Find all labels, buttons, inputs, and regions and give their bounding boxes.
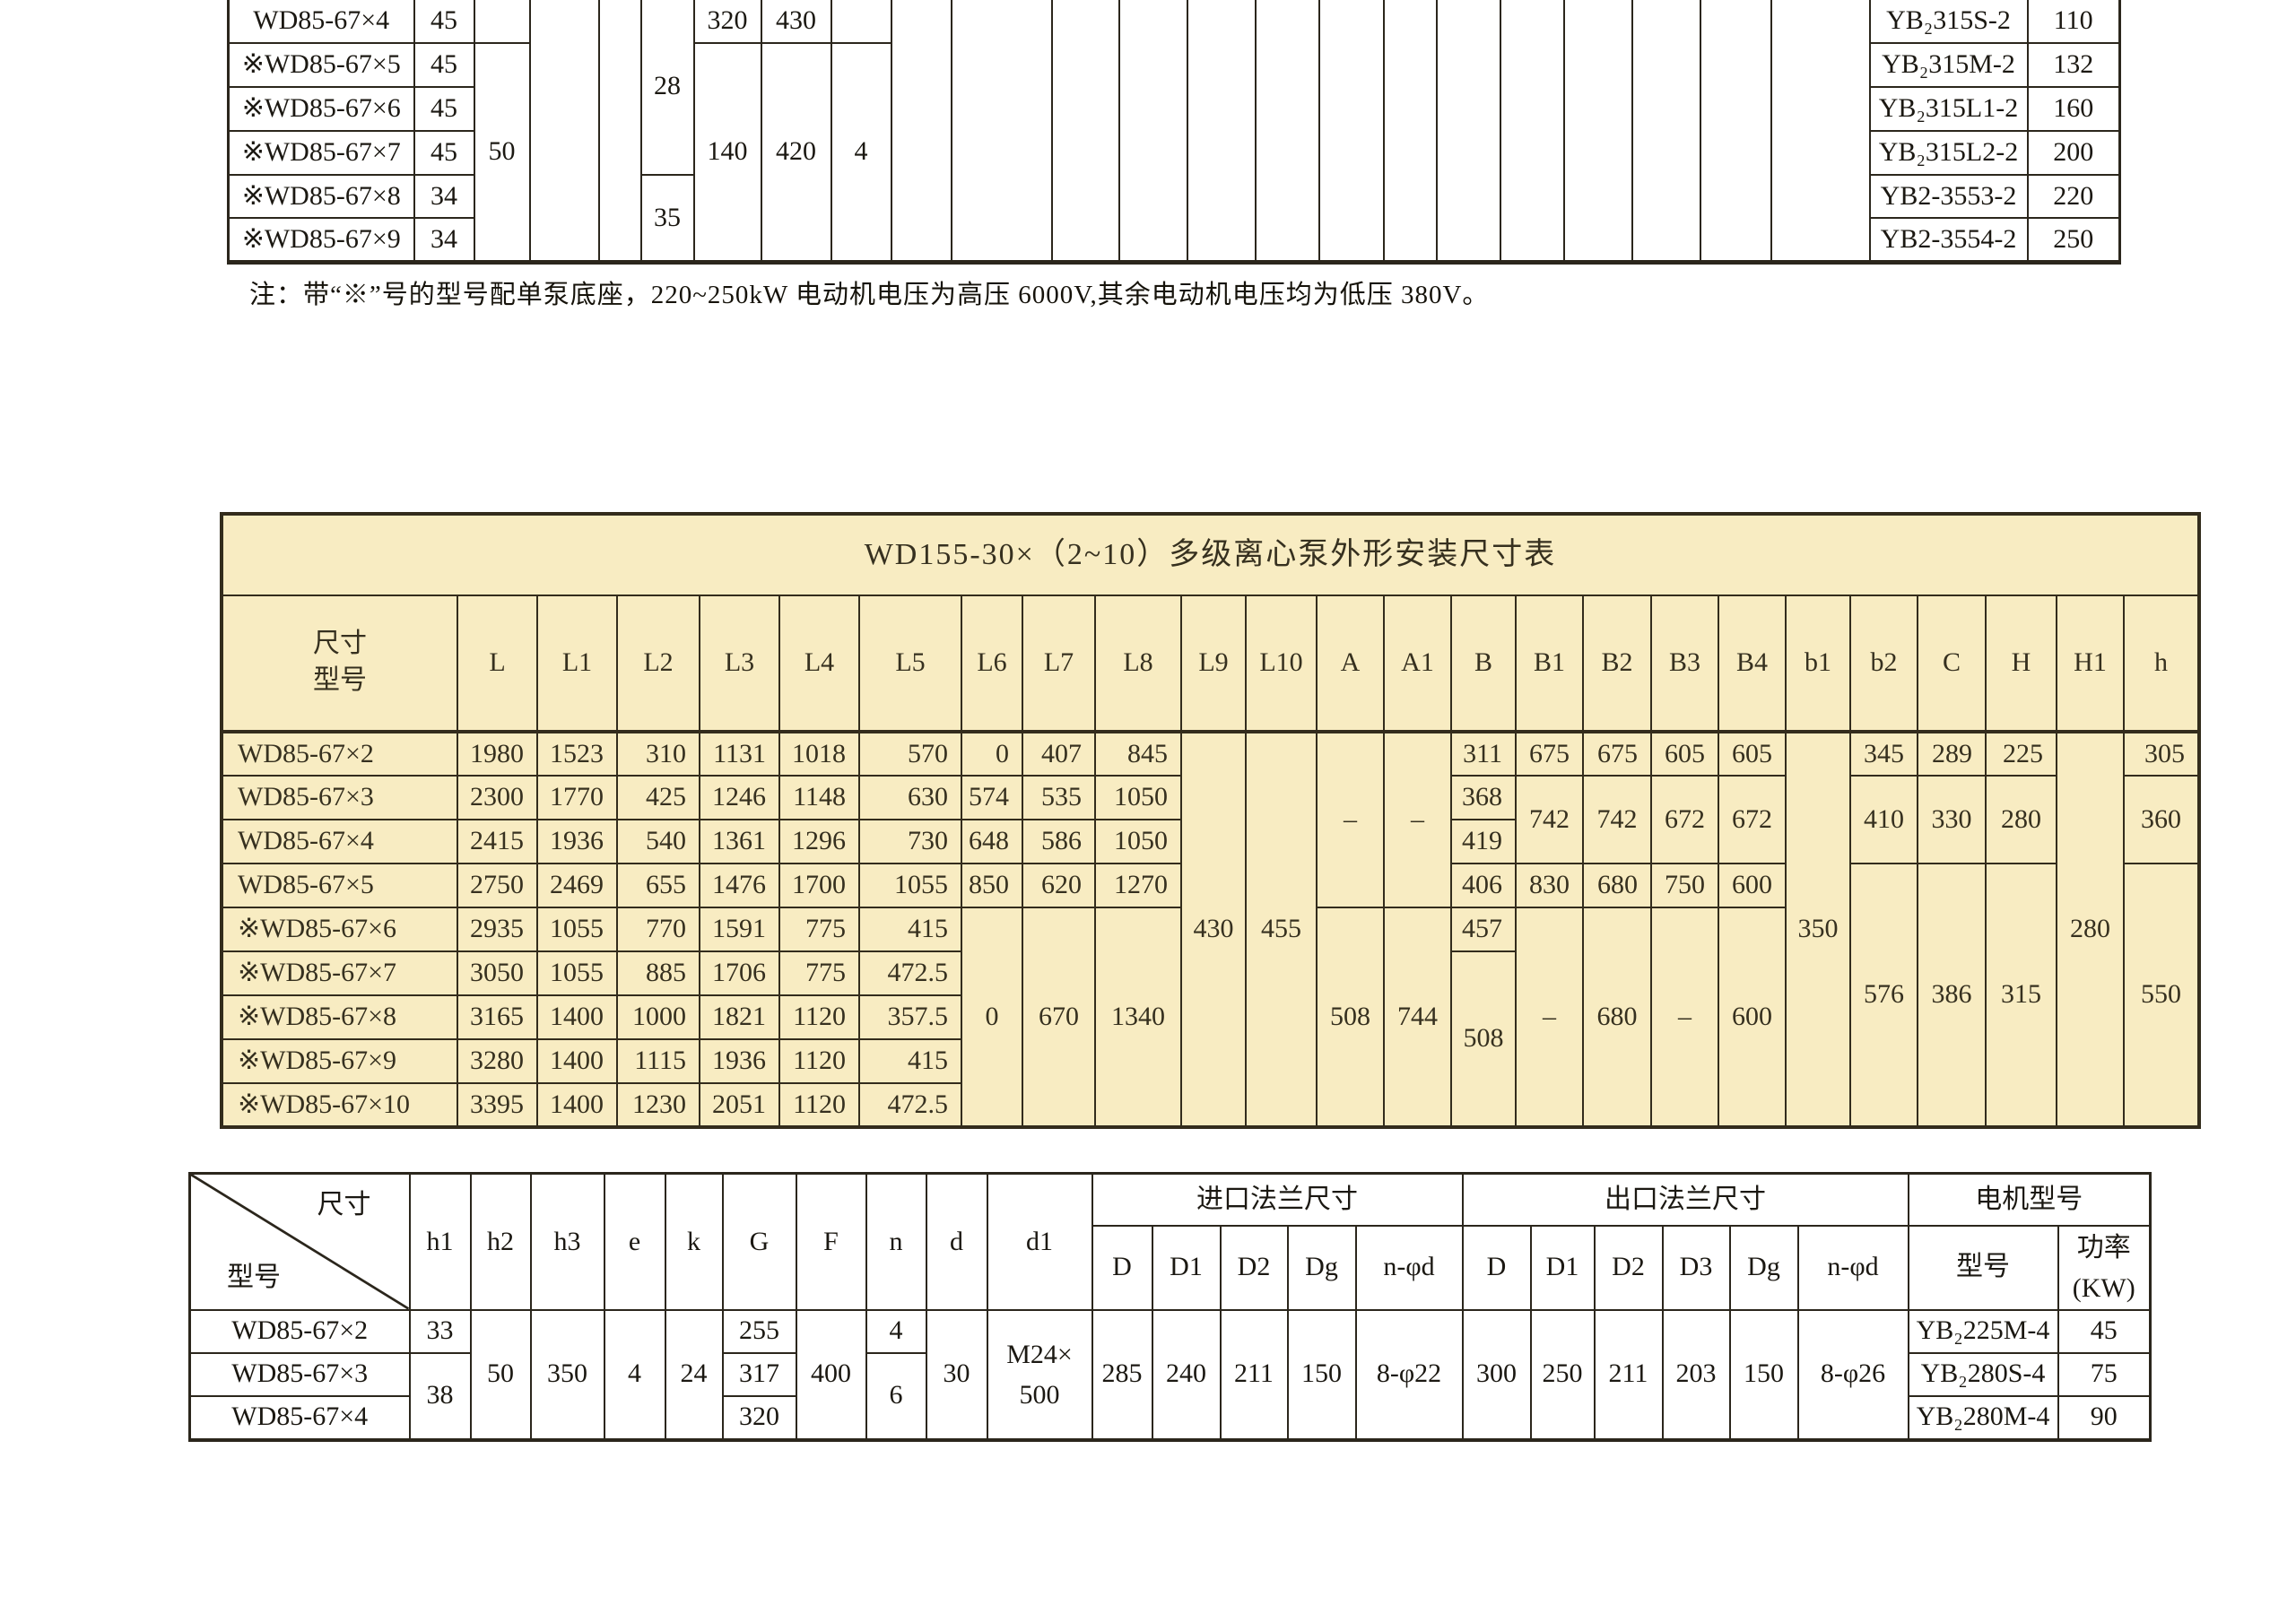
value-cell: 1115 <box>617 1039 700 1083</box>
value-cell: 655 <box>617 864 700 907</box>
top-table: WD85-67×4 45 28 320 430 YB₂315S-2 110 ※W… <box>227 0 2121 265</box>
value-cell: 350 <box>1786 732 1850 1127</box>
col-header-L6: L6 <box>961 595 1022 732</box>
col-header-h1: h1 <box>410 1174 471 1310</box>
model-cell: WD85-67×5 <box>222 864 457 907</box>
motor-cell: YB₂280M-4 <box>1909 1396 2058 1440</box>
value-cell: 35 <box>641 175 694 262</box>
model-cell: ※WD85-67×6 <box>222 907 457 951</box>
value-cell: 3395 <box>457 1083 537 1127</box>
col-header-L9: L9 <box>1181 595 1246 732</box>
value-cell: 30 <box>926 1310 987 1440</box>
value-cell: 300 <box>1463 1310 1531 1440</box>
motor-cell: YB2-3554-2 <box>1870 218 2028 262</box>
group-header-outlet-flange: 出口法兰尺寸 <box>1463 1174 1909 1226</box>
col-header-F: F <box>796 1174 866 1310</box>
empty-cell <box>952 0 1052 262</box>
value-cell: 4 <box>604 1310 665 1440</box>
value-cell: 0 <box>961 732 1022 776</box>
bottom-table: 尺寸 型号 h1 h2 h3 e k G F n d d1 进口法兰尺寸 出口法… <box>188 1172 2152 1442</box>
power-cell: 250 <box>2028 218 2120 262</box>
model-cell: ※WD85-67×8 <box>229 175 414 218</box>
value-cell: – <box>1651 907 1718 1127</box>
value-cell: 1591 <box>700 907 779 951</box>
value-cell: 1120 <box>779 1083 859 1127</box>
value-cell: 34 <box>414 218 474 262</box>
empty-cell <box>1564 0 1632 262</box>
empty-cell <box>1632 0 1700 262</box>
value-cell: 8-φ26 <box>1798 1310 1909 1440</box>
value-cell: 360 <box>2124 776 2199 864</box>
col-header-L3: L3 <box>700 595 779 732</box>
value-cell: 45 <box>414 0 474 43</box>
col-header-inlet-D2: D2 <box>1221 1226 1288 1310</box>
value-cell: – <box>1384 732 1451 907</box>
model-cell: WD85-67×3 <box>190 1353 410 1396</box>
value-cell: 535 <box>1022 776 1095 820</box>
value-cell: 1400 <box>537 1083 617 1127</box>
value-cell: 280 <box>2057 732 2124 1127</box>
col-header-inlet-Dg: Dg <box>1288 1226 1356 1310</box>
value-cell: 1000 <box>617 995 700 1039</box>
value-cell: 1361 <box>700 820 779 864</box>
value-cell: 1120 <box>779 995 859 1039</box>
value-cell: 670 <box>1022 907 1095 1127</box>
value-cell: 1270 <box>1095 864 1181 907</box>
value-cell: 311 <box>1451 732 1516 776</box>
model-cell: ※WD85-67×6 <box>229 87 414 131</box>
col-header-inlet-nphid: n-φd <box>1356 1226 1463 1310</box>
col-header-A1: A1 <box>1384 595 1451 732</box>
model-cell: WD85-67×3 <box>222 776 457 820</box>
empty-cell <box>530 0 599 262</box>
model-cell: WD85-67×2 <box>190 1310 410 1353</box>
value-cell: 3165 <box>457 995 537 1039</box>
col-header-e: e <box>604 1174 665 1310</box>
power-label-line2: (KW) <box>2060 1268 2149 1308</box>
value-cell: 1340 <box>1095 907 1181 1127</box>
value-cell: 45 <box>414 43 474 87</box>
corner-header: 尺寸 型号 <box>190 1174 410 1310</box>
value-cell: 1400 <box>537 995 617 1039</box>
value-cell: 415 <box>859 1039 961 1083</box>
value-cell: 455 <box>1246 732 1317 1127</box>
value-cell: M24× 500 <box>987 1310 1092 1440</box>
value-cell: 508 <box>1451 951 1516 1127</box>
value-cell: 1050 <box>1095 776 1181 820</box>
value-cell: 1296 <box>779 820 859 864</box>
model-cell: ※WD85-67×9 <box>229 218 414 262</box>
d1-line2: 500 <box>989 1375 1091 1415</box>
value-cell: 280 <box>1986 776 2057 864</box>
col-header-B2: B2 <box>1583 595 1651 732</box>
col-header-outlet-nphid: n-φd <box>1798 1226 1909 1310</box>
col-header-inlet-D: D <box>1092 1226 1152 1310</box>
power-cell: 132 <box>2028 43 2120 87</box>
value-cell: 600 <box>1718 907 1786 1127</box>
value-cell: 350 <box>531 1310 604 1440</box>
value-cell: 211 <box>1595 1310 1663 1440</box>
value-cell: 50 <box>474 43 530 262</box>
value-cell: 730 <box>859 820 961 864</box>
col-header-B3: B3 <box>1651 595 1718 732</box>
model-cell: WD85-67×4 <box>222 820 457 864</box>
group-header-inlet-flange: 进口法兰尺寸 <box>1092 1174 1463 1226</box>
value-cell: 770 <box>617 907 700 951</box>
value-cell: 672 <box>1718 776 1786 864</box>
value-cell: 540 <box>617 820 700 864</box>
col-header-A: A <box>1317 595 1384 732</box>
motor-cell: YB₂315S-2 <box>1870 0 2028 43</box>
value-cell: 430 <box>761 0 831 43</box>
value-cell: 1230 <box>617 1083 700 1127</box>
motor-cell: YB₂315L2-2 <box>1870 131 2028 175</box>
value-cell: 1770 <box>537 776 617 820</box>
value-cell: 1700 <box>779 864 859 907</box>
value-cell: 600 <box>1718 864 1786 907</box>
value-cell: 648 <box>961 820 1022 864</box>
power-label-line1: 功率 <box>2060 1228 2149 1268</box>
group-header-motor: 电机型号 <box>1909 1174 2151 1226</box>
value-cell: 28 <box>641 0 694 175</box>
value-cell: 1246 <box>700 776 779 820</box>
empty-cell <box>1700 0 1771 262</box>
col-header-outlet-D1: D1 <box>1531 1226 1595 1310</box>
corner-size-label: 尺寸 <box>317 1187 371 1224</box>
value-cell: 1055 <box>537 951 617 995</box>
model-cell: WD85-67×2 <box>222 732 457 776</box>
power-cell: 160 <box>2028 87 2120 131</box>
value-cell: 386 <box>1918 864 1986 1127</box>
middle-table-title: WD155-30×（2~10）多级离心泵外形安装尺寸表 <box>222 514 2199 595</box>
value-cell: 211 <box>1221 1310 1288 1440</box>
value-cell: 203 <box>1663 1310 1730 1440</box>
col-header-G: G <box>723 1174 796 1310</box>
value-cell: 2750 <box>457 864 537 907</box>
value-cell: 675 <box>1583 732 1651 776</box>
value-cell: 320 <box>723 1396 796 1440</box>
value-cell: 1018 <box>779 732 859 776</box>
value-cell: 285 <box>1092 1310 1152 1440</box>
value-cell: 1523 <box>537 732 617 776</box>
d1-line1: M24× <box>989 1334 1091 1375</box>
value-cell: 550 <box>2124 864 2199 1127</box>
value-cell: 775 <box>779 907 859 951</box>
value-cell: 415 <box>859 907 961 951</box>
empty-cell <box>599 0 641 262</box>
value-cell: 570 <box>859 732 961 776</box>
value-cell: 586 <box>1022 820 1095 864</box>
value-cell: 150 <box>1288 1310 1356 1440</box>
value-cell: 1706 <box>700 951 779 995</box>
col-header-outlet-D: D <box>1463 1226 1531 1310</box>
value-cell: 1050 <box>1095 820 1181 864</box>
empty-cell <box>891 0 952 262</box>
empty-cell <box>1319 0 1384 262</box>
value-cell: 680 <box>1583 864 1651 907</box>
value-cell: 410 <box>1850 776 1918 864</box>
value-cell: 630 <box>859 776 961 820</box>
motor-cell: YB₂315M-2 <box>1870 43 2028 87</box>
value-cell: 1131 <box>700 732 779 776</box>
col-header-B: B <box>1451 595 1516 732</box>
col-header-L1: L1 <box>537 595 617 732</box>
value-cell: 2051 <box>700 1083 779 1127</box>
col-header-L10: L10 <box>1246 595 1317 732</box>
value-cell: 742 <box>1516 776 1583 864</box>
col-header-n: n <box>866 1174 926 1310</box>
value-cell: 330 <box>1918 776 1986 864</box>
power-cell: 110 <box>2028 0 2120 43</box>
value-cell: 574 <box>961 776 1022 820</box>
value-cell: 2415 <box>457 820 537 864</box>
value-cell: 742 <box>1583 776 1651 864</box>
col-header-d: d <box>926 1174 987 1310</box>
empty-cell <box>474 0 530 43</box>
value-cell: 0 <box>961 907 1022 1127</box>
value-cell: 320 <box>694 0 761 43</box>
value-cell: 33 <box>410 1310 471 1353</box>
table-note: 注：带“※”号的型号配单泵底座，220~250kW 电动机电压为高压 6000V… <box>249 273 1489 311</box>
middle-table: WD155-30×（2~10）多级离心泵外形安装尺寸表 尺寸 型号 L L1 L… <box>220 512 2201 1129</box>
value-cell: 317 <box>723 1353 796 1396</box>
model-cell: ※WD85-67×5 <box>229 43 414 87</box>
value-cell: 357.5 <box>859 995 961 1039</box>
value-cell: 255 <box>723 1310 796 1353</box>
model-cell: ※WD85-67×10 <box>222 1083 457 1127</box>
value-cell: 225 <box>1986 732 2057 776</box>
value-cell: 775 <box>779 951 859 995</box>
value-cell: 368 <box>1451 776 1516 820</box>
value-cell: 4 <box>866 1310 926 1353</box>
value-cell: 605 <box>1718 732 1786 776</box>
value-cell: 2469 <box>537 864 617 907</box>
value-cell: 744 <box>1384 907 1451 1127</box>
value-cell: 1120 <box>779 1039 859 1083</box>
power-cell: 45 <box>2058 1310 2151 1353</box>
col-header-C: C <box>1918 595 1986 732</box>
empty-cell <box>1119 0 1187 262</box>
motor-cell: YB₂225M-4 <box>1909 1310 2058 1353</box>
corner-header: 尺寸 型号 <box>222 595 457 732</box>
value-cell: 45 <box>414 131 474 175</box>
value-cell: 508 <box>1317 907 1384 1127</box>
value-cell: – <box>1516 907 1583 1127</box>
corner-size-label: 尺寸 <box>313 626 367 663</box>
col-header-B1: B1 <box>1516 595 1583 732</box>
value-cell: 1400 <box>537 1039 617 1083</box>
value-cell: 576 <box>1850 864 1918 1127</box>
value-cell: 24 <box>665 1310 723 1440</box>
diagonal-line <box>191 1175 409 1309</box>
model-cell: ※WD85-67×9 <box>222 1039 457 1083</box>
value-cell: 680 <box>1583 907 1651 1127</box>
value-cell: 305 <box>2124 732 2199 776</box>
col-header-h2: h2 <box>471 1174 531 1310</box>
value-cell: 750 <box>1651 864 1718 907</box>
value-cell: 1055 <box>537 907 617 951</box>
value-cell: 1148 <box>779 776 859 820</box>
power-cell: 220 <box>2028 175 2120 218</box>
value-cell: 50 <box>471 1310 531 1440</box>
value-cell: 3050 <box>457 951 537 995</box>
value-cell: 407 <box>1022 732 1095 776</box>
value-cell: 8-φ22 <box>1356 1310 1463 1440</box>
power-cell: 90 <box>2058 1396 2151 1440</box>
value-cell: 45 <box>414 87 474 131</box>
value-cell: 38 <box>410 1353 471 1440</box>
empty-cell <box>1256 0 1319 262</box>
value-cell: 140 <box>694 43 761 262</box>
value-cell: 400 <box>796 1310 866 1440</box>
col-header-L8: L8 <box>1095 595 1181 732</box>
col-header-b2: b2 <box>1850 595 1918 732</box>
value-cell: 3280 <box>457 1039 537 1083</box>
col-header-outlet-Dg: Dg <box>1730 1226 1798 1310</box>
model-cell: WD85-67×4 <box>229 0 414 43</box>
value-cell: 605 <box>1651 732 1718 776</box>
value-cell: 250 <box>1531 1310 1595 1440</box>
value-cell: 406 <box>1451 864 1516 907</box>
corner-model-label: 型号 <box>227 1260 281 1297</box>
model-cell: ※WD85-67×7 <box>222 951 457 995</box>
value-cell: 240 <box>1152 1310 1221 1440</box>
col-header-d1: d1 <box>987 1174 1092 1310</box>
empty-cell <box>1437 0 1500 262</box>
document-page: { "top_table": { "rows": [ {"model":"WD8… <box>0 0 2296 1623</box>
value-cell: 6 <box>866 1353 926 1440</box>
value-cell: 425 <box>617 776 700 820</box>
value-cell: 315 <box>1986 864 2057 1127</box>
value-cell: 620 <box>1022 864 1095 907</box>
empty-cell <box>1187 0 1256 262</box>
col-header-h3: h3 <box>531 1174 604 1310</box>
model-cell: ※WD85-67×8 <box>222 995 457 1039</box>
value-cell: 310 <box>617 732 700 776</box>
power-cell: 200 <box>2028 131 2120 175</box>
col-header-outlet-D2: D2 <box>1595 1226 1663 1310</box>
value-cell: 850 <box>961 864 1022 907</box>
col-header-L: L <box>457 595 537 732</box>
value-cell: 34 <box>414 175 474 218</box>
value-cell: 1476 <box>700 864 779 907</box>
value-cell: 419 <box>1451 820 1516 864</box>
value-cell: 1055 <box>859 864 961 907</box>
col-header-L5: L5 <box>859 595 961 732</box>
value-cell: 1821 <box>700 995 779 1039</box>
motor-cell: YB₂315L1-2 <box>1870 87 2028 131</box>
value-cell: 1980 <box>457 732 537 776</box>
value-cell: 289 <box>1918 732 1986 776</box>
value-cell: 885 <box>617 951 700 995</box>
value-cell: 1936 <box>700 1039 779 1083</box>
corner-model-label: 型号 <box>313 663 367 699</box>
motor-cell: YB₂280S-4 <box>1909 1353 2058 1396</box>
value-cell: 672 <box>1651 776 1718 864</box>
value-cell: 472.5 <box>859 951 961 995</box>
col-header-motor-model: 型号 <box>1909 1226 2058 1310</box>
value-cell: 420 <box>761 43 831 262</box>
col-header-inlet-D1: D1 <box>1152 1226 1221 1310</box>
value-cell: 845 <box>1095 732 1181 776</box>
empty-cell <box>1384 0 1437 262</box>
value-cell: 4 <box>831 43 891 262</box>
model-cell: WD85-67×4 <box>190 1396 410 1440</box>
value-cell: 2935 <box>457 907 537 951</box>
empty-cell <box>1771 0 1870 262</box>
col-header-L4: L4 <box>779 595 859 732</box>
col-header-power: 功率 (KW) <box>2058 1226 2151 1310</box>
value-cell: 830 <box>1516 864 1583 907</box>
col-header-h: h <box>2124 595 2199 732</box>
empty-cell <box>1500 0 1564 262</box>
value-cell: 345 <box>1850 732 1918 776</box>
model-cell: ※WD85-67×7 <box>229 131 414 175</box>
value-cell: 472.5 <box>859 1083 961 1127</box>
col-header-L2: L2 <box>617 595 700 732</box>
motor-cell: YB2-3553-2 <box>1870 175 2028 218</box>
col-header-L7: L7 <box>1022 595 1095 732</box>
col-header-H: H <box>1986 595 2057 732</box>
col-header-outlet-D3: D3 <box>1663 1226 1730 1310</box>
empty-cell <box>1052 0 1119 262</box>
empty-cell <box>831 0 891 43</box>
value-cell: 150 <box>1730 1310 1798 1440</box>
col-header-k: k <box>665 1174 723 1310</box>
value-cell: 2300 <box>457 776 537 820</box>
value-cell: – <box>1317 732 1384 907</box>
value-cell: 430 <box>1181 732 1246 1127</box>
power-cell: 75 <box>2058 1353 2151 1396</box>
value-cell: 1936 <box>537 820 617 864</box>
value-cell: 457 <box>1451 907 1516 951</box>
value-cell: 675 <box>1516 732 1583 776</box>
col-header-b1: b1 <box>1786 595 1850 732</box>
col-header-B4: B4 <box>1718 595 1786 732</box>
col-header-H1: H1 <box>2057 595 2124 732</box>
